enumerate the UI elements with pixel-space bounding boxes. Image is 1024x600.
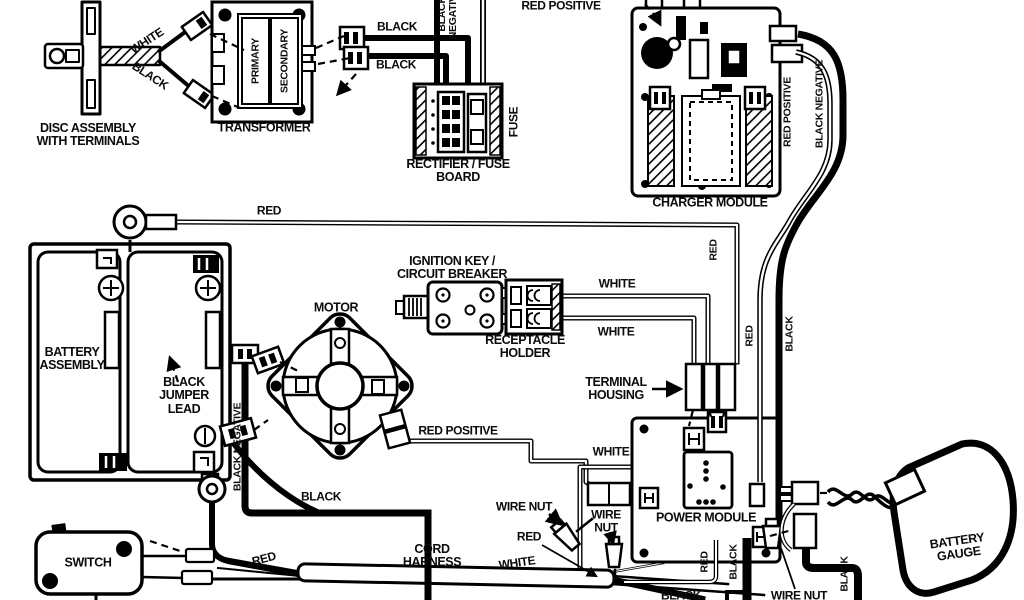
receptacle-holder-graphic: [506, 280, 562, 334]
charger-module-graphic: [632, 0, 802, 196]
wire-black-1: [362, 38, 468, 90]
gauge-connector-graphic: [780, 482, 818, 550]
rectifier-fuse-board-graphic: [414, 84, 502, 158]
battery-gauge-graphic: [885, 443, 1013, 593]
wire-nut-left-graphic: [550, 518, 582, 552]
motor-graphic: [220, 308, 418, 464]
terminal-housing-graphic: [686, 364, 735, 410]
twisted-pair-graphic: [828, 489, 898, 508]
wire-motor-red-positive: [402, 441, 596, 489]
wire-nut-center-graphic: [606, 537, 622, 567]
wire-nut-right-graphic: [763, 519, 781, 548]
disc-assembly-graphic: [45, 2, 214, 114]
wire-white-2: [560, 318, 694, 362]
cord-harness-graphic: [298, 564, 614, 588]
switch-graphic: [36, 523, 214, 600]
wire-white-1: [560, 296, 708, 362]
battery-assembly-graphic: [30, 206, 258, 502]
wiring-diagram: DISC ASSEMBLY WITH TERMINALS WHITE BLACK…: [0, 0, 1024, 600]
wire-gauge-black: [806, 548, 858, 600]
ignition-key-graphic: [396, 282, 516, 334]
wire-black-negative-run: [779, 34, 843, 524]
transformer-graphic: [212, 2, 315, 122]
power-module-left-connector: [588, 483, 630, 505]
diagram-canvas: [0, 0, 1024, 600]
spade-connectors: [340, 27, 368, 69]
